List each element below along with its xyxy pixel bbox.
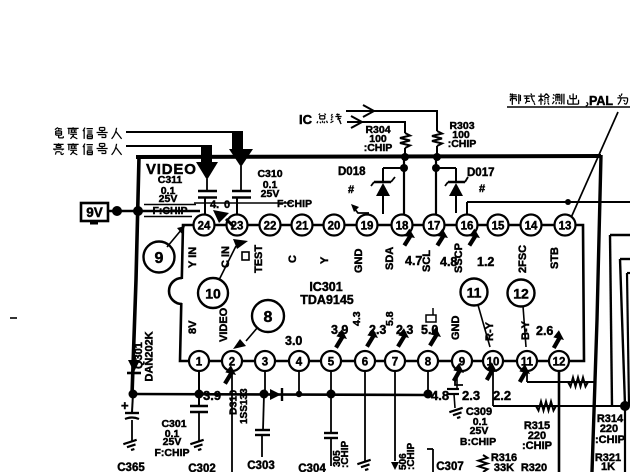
svg-text:22: 22 — [264, 221, 277, 233]
svg-text:3: 3 — [262, 357, 268, 369]
svg-text:25V: 25V — [159, 193, 178, 205]
svg-text:11: 11 — [467, 285, 482, 301]
svg-text:11: 11 — [521, 357, 534, 369]
svg-text:0: 0 — [224, 199, 230, 211]
svg-text:8V: 8V — [187, 320, 199, 334]
svg-text:2: 2 — [229, 357, 235, 369]
svg-text:C302: C302 — [188, 463, 216, 472]
svg-text:DAN202K: DAN202K — [144, 331, 156, 381]
svg-text:5.8: 5.8 — [384, 311, 396, 326]
svg-text:4: 4 — [296, 357, 303, 369]
svg-text:7: 7 — [392, 357, 398, 369]
svg-text:2FSC: 2FSC — [517, 245, 529, 273]
svg-text:VIDEO: VIDEO — [218, 307, 230, 342]
svg-text:14: 14 — [525, 221, 538, 233]
svg-text:24: 24 — [198, 221, 211, 233]
svg-text:2.3: 2.3 — [462, 388, 480, 403]
svg-text:4.: 4. — [210, 199, 219, 211]
svg-text:#: # — [479, 183, 485, 195]
svg-text:C365: C365 — [117, 462, 145, 472]
svg-text:1.2: 1.2 — [477, 255, 494, 269]
svg-text:R320: R320 — [521, 462, 547, 472]
svg-text:21: 21 — [296, 221, 309, 233]
svg-text:PAL: PAL — [589, 94, 613, 108]
svg-text:16: 16 — [461, 221, 474, 233]
svg-text:D017: D017 — [467, 167, 495, 179]
svg-text:15: 15 — [492, 221, 505, 233]
svg-text:17: 17 — [428, 221, 441, 233]
svg-text:F:CHIP: F:CHIP — [155, 447, 190, 459]
svg-text:Y IN: Y IN — [187, 247, 199, 268]
svg-text::CHIP: :CHIP — [406, 442, 417, 470]
svg-text:5: 5 — [328, 357, 335, 369]
svg-text:13: 13 — [559, 221, 572, 233]
svg-text:8: 8 — [264, 309, 273, 326]
svg-text:33K: 33K — [494, 462, 514, 472]
svg-text:6: 6 — [362, 357, 368, 369]
svg-text:STB: STB — [549, 247, 561, 269]
svg-text:12: 12 — [553, 357, 566, 369]
svg-text:1: 1 — [196, 357, 203, 369]
svg-text:F:CHIP: F:CHIP — [153, 205, 188, 217]
svg-text:C304: C304 — [298, 463, 326, 472]
svg-text:4.8: 4.8 — [440, 255, 457, 269]
svg-text:IC: IC — [299, 112, 313, 127]
svg-text:3.0: 3.0 — [285, 334, 302, 348]
svg-text:19: 19 — [361, 221, 374, 233]
svg-text:20: 20 — [328, 221, 341, 233]
svg-text:2.6: 2.6 — [536, 324, 553, 338]
svg-text:4.7: 4.7 — [405, 254, 422, 268]
svg-text:18: 18 — [396, 221, 409, 233]
svg-text:TDA9145: TDA9145 — [300, 293, 354, 307]
svg-text:F:CHIP: F:CHIP — [277, 198, 312, 210]
svg-text:9V: 9V — [86, 205, 103, 220]
svg-text:2.2: 2.2 — [493, 388, 511, 403]
svg-text:TEST: TEST — [253, 245, 265, 273]
svg-text:1SS133: 1SS133 — [239, 388, 250, 424]
svg-text:C: C — [287, 255, 299, 263]
svg-text:8: 8 — [425, 357, 432, 369]
svg-text:SDA: SDA — [384, 247, 396, 270]
svg-text:D018: D018 — [338, 166, 366, 178]
svg-text::CHIP: :CHIP — [595, 434, 625, 446]
svg-text:D310: D310 — [228, 390, 240, 415]
svg-text:12: 12 — [513, 286, 529, 302]
svg-text::CHIP: :CHIP — [448, 138, 477, 150]
svg-text:B:CHIP: B:CHIP — [460, 436, 496, 448]
svg-text:4.3: 4.3 — [351, 311, 363, 326]
svg-text:GND: GND — [353, 249, 365, 274]
svg-text::CHIP: :CHIP — [522, 440, 552, 452]
svg-text:IC301: IC301 — [309, 280, 342, 294]
svg-text:4.8: 4.8 — [431, 388, 449, 403]
svg-text:+: + — [121, 398, 129, 413]
svg-text:9: 9 — [155, 250, 164, 267]
svg-text:10: 10 — [205, 286, 221, 302]
svg-text:3.9: 3.9 — [203, 388, 221, 403]
svg-text:#: # — [348, 184, 354, 196]
svg-text:C307: C307 — [436, 461, 464, 472]
svg-text::CHIP: :CHIP — [364, 142, 393, 154]
svg-text:C303: C303 — [247, 460, 275, 472]
svg-text:GND: GND — [450, 316, 462, 341]
svg-text::CHIP: :CHIP — [340, 440, 351, 468]
svg-text:1K: 1K — [601, 461, 615, 472]
svg-text:SCL: SCL — [421, 250, 433, 272]
svg-text:Y: Y — [319, 256, 331, 264]
